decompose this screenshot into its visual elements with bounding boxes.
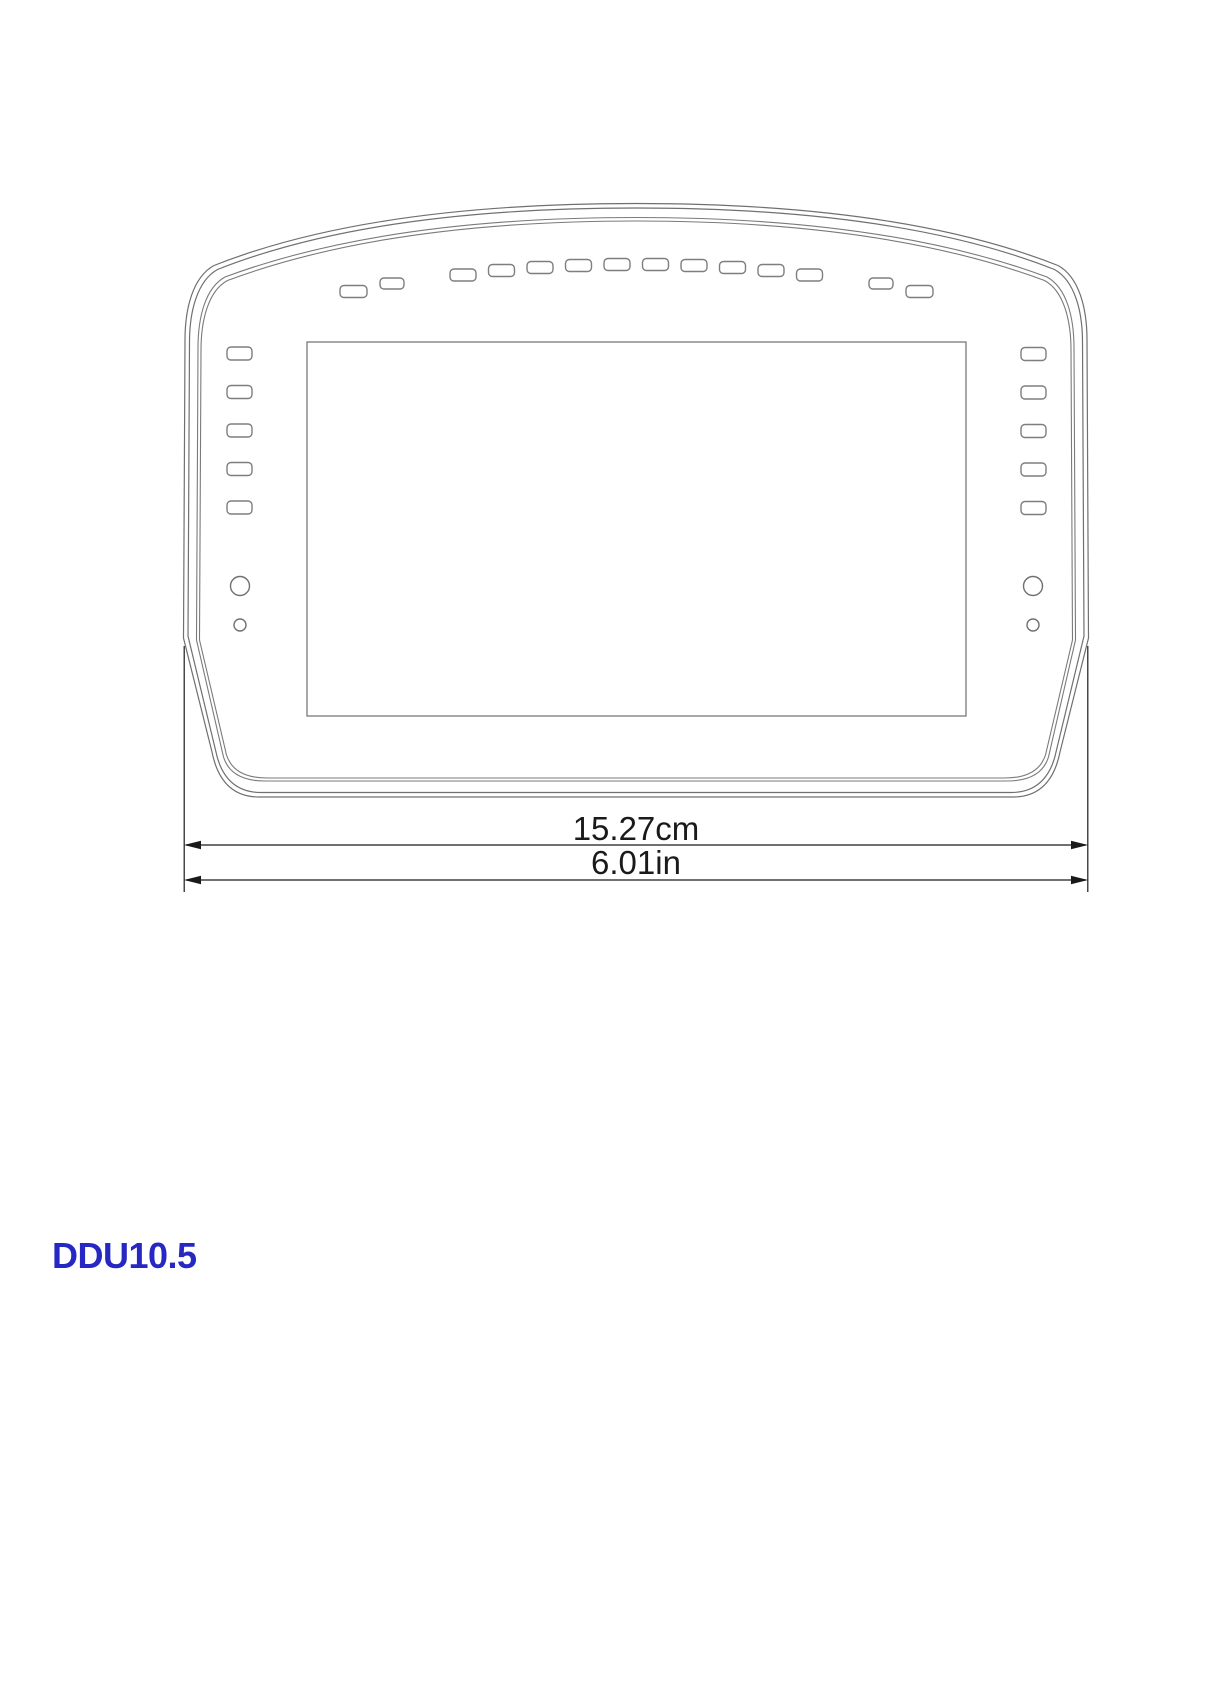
- top-right-led-1: [869, 278, 893, 289]
- product-label: DDU10.5: [52, 1235, 197, 1276]
- right-column-led-1: [1021, 348, 1046, 361]
- top-arc-led-9: [758, 265, 784, 277]
- top-left-led-1: [340, 286, 367, 298]
- outer-shell-line-inner: [188, 208, 1084, 793]
- dim-in-arrow-right: [1071, 876, 1088, 884]
- dim-cm-arrow-right: [1071, 841, 1088, 849]
- top-arc-led-2: [489, 265, 515, 277]
- dim-in-arrow-left: [184, 876, 201, 884]
- left-column-led-2: [227, 386, 252, 399]
- top-left-led-2: [380, 278, 404, 289]
- dim-cm-arrow-left: [184, 841, 201, 849]
- top-arc-led-6: [643, 259, 669, 271]
- left-column-led-1: [227, 347, 252, 360]
- device-drawing-svg: 15.27cm 6.01in DDU10.5: [0, 0, 1206, 1706]
- right-column-led-2: [1021, 386, 1046, 399]
- right-sensor-hole-circle: [1027, 619, 1039, 631]
- left-column-led-3: [227, 424, 252, 437]
- left-sensor-hole-circle: [234, 619, 246, 631]
- bezel-line-inner: [200, 221, 1073, 778]
- right-push-button-circle: [1024, 577, 1043, 596]
- display-screen: [307, 342, 966, 716]
- right-column-led-5: [1021, 502, 1046, 515]
- technical-drawing-page: 15.27cm 6.01in DDU10.5: [0, 0, 1206, 1706]
- dimension-label-in: 6.01in: [591, 844, 681, 881]
- top-arc-led-3: [527, 262, 553, 274]
- left-push-button-circle: [231, 577, 250, 596]
- top-arc-led-5: [604, 259, 630, 271]
- bezel-line-outer: [197, 218, 1076, 782]
- left-column-led-5: [227, 501, 252, 514]
- top-arc-led-7: [681, 260, 707, 272]
- outer-shell-line-outer: [184, 204, 1089, 798]
- top-right-led-2: [906, 286, 933, 298]
- top-arc-led-1: [450, 269, 476, 281]
- right-column-led-3: [1021, 425, 1046, 438]
- left-column-led-4: [227, 463, 252, 476]
- top-arc-led-4: [566, 260, 592, 272]
- top-arc-led-8: [720, 262, 746, 274]
- top-arc-led-10: [797, 269, 823, 281]
- right-column-led-4: [1021, 463, 1046, 476]
- dimension-label-cm: 15.27cm: [573, 810, 700, 847]
